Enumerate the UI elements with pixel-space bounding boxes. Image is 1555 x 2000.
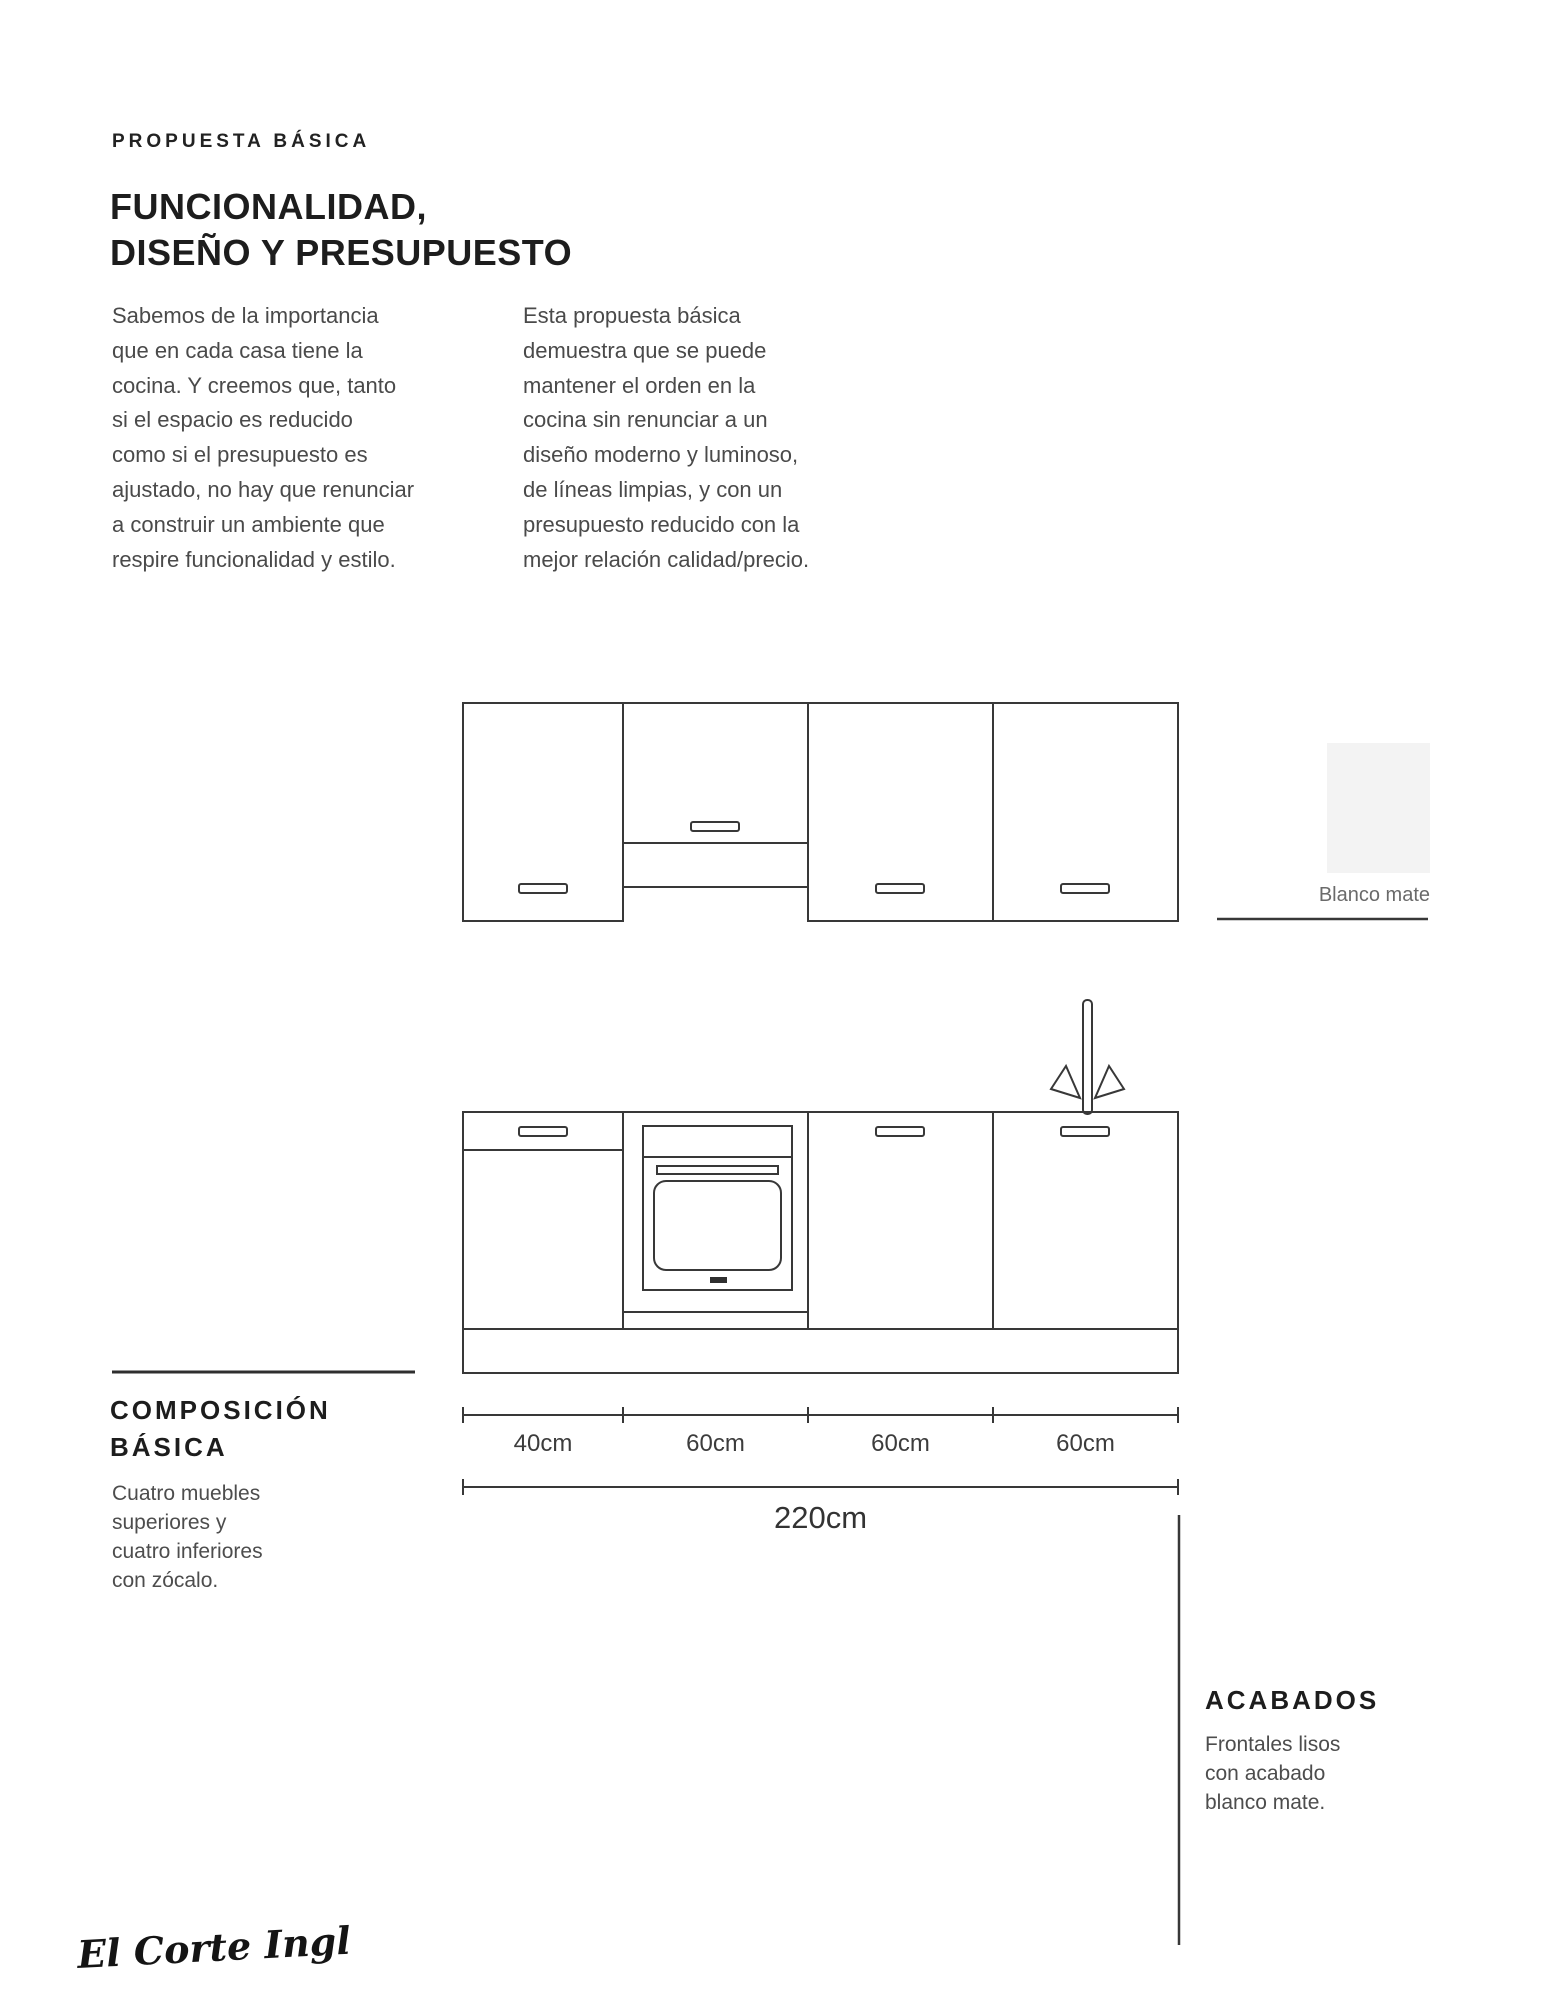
catalog-page: PROPUESTA BÁSICA FUNCIONALIDAD, DISEÑO Y…: [0, 0, 1555, 2000]
base-cabinet-3: [808, 1112, 993, 1329]
composition-body: Cuatro muebles superiores y cuatro infer…: [112, 1479, 372, 1595]
upper-cabinet-4-handle: [1061, 884, 1109, 893]
composition-heading: COMPOSICIÓN BÁSICA: [110, 1392, 331, 1466]
dimension-line-segments: [463, 1407, 1178, 1423]
upper-cabinet-1-handle: [519, 884, 567, 893]
oven-handle: [710, 1277, 727, 1283]
dimension-line-total: [463, 1479, 1178, 1495]
dimension-label-total: 220cm: [463, 1500, 1178, 1536]
dimension-label-60cm-3: 60cm: [993, 1430, 1178, 1458]
composition-heading-line-2: BÁSICA: [110, 1429, 331, 1466]
faucet-icon: [1083, 1000, 1092, 1114]
oven-door-window: [654, 1181, 781, 1270]
finish-swatch-label: Blanco mate: [1230, 884, 1430, 907]
dimension-label-60cm-2: 60cm: [808, 1430, 993, 1458]
oven-body: [643, 1126, 792, 1290]
base-cabinet-4: [993, 1112, 1178, 1329]
base-cabinet-4-handle: [1061, 1127, 1109, 1136]
faucet-right-lever-icon: [1095, 1066, 1124, 1098]
acabados-body: Frontales lisos con acabado blanco mate.: [1205, 1730, 1455, 1817]
base-cabinet-3-handle: [876, 1127, 924, 1136]
plinth: [463, 1329, 1178, 1373]
logo-text: El Corte Inglés: [75, 1915, 350, 1977]
faucet-left-lever-icon: [1051, 1066, 1080, 1098]
acabados-heading: ACABADOS: [1205, 1682, 1379, 1719]
composition-heading-line-1: COMPOSICIÓN: [110, 1392, 331, 1429]
dimension-label-40cm: 40cm: [463, 1430, 623, 1458]
base-cabinet-1: [463, 1112, 623, 1329]
finish-swatch: [1327, 743, 1430, 873]
dimension-label-60cm-1: 60cm: [623, 1430, 808, 1458]
upper-cabinet-3-handle: [876, 884, 924, 893]
el-corte-ingles-logo: El Corte Inglés: [70, 1908, 350, 2000]
base-cabinet-1-handle: [519, 1127, 567, 1136]
upper-cabinet-2-handle: [691, 822, 739, 831]
oven-vent-slot: [657, 1166, 778, 1174]
